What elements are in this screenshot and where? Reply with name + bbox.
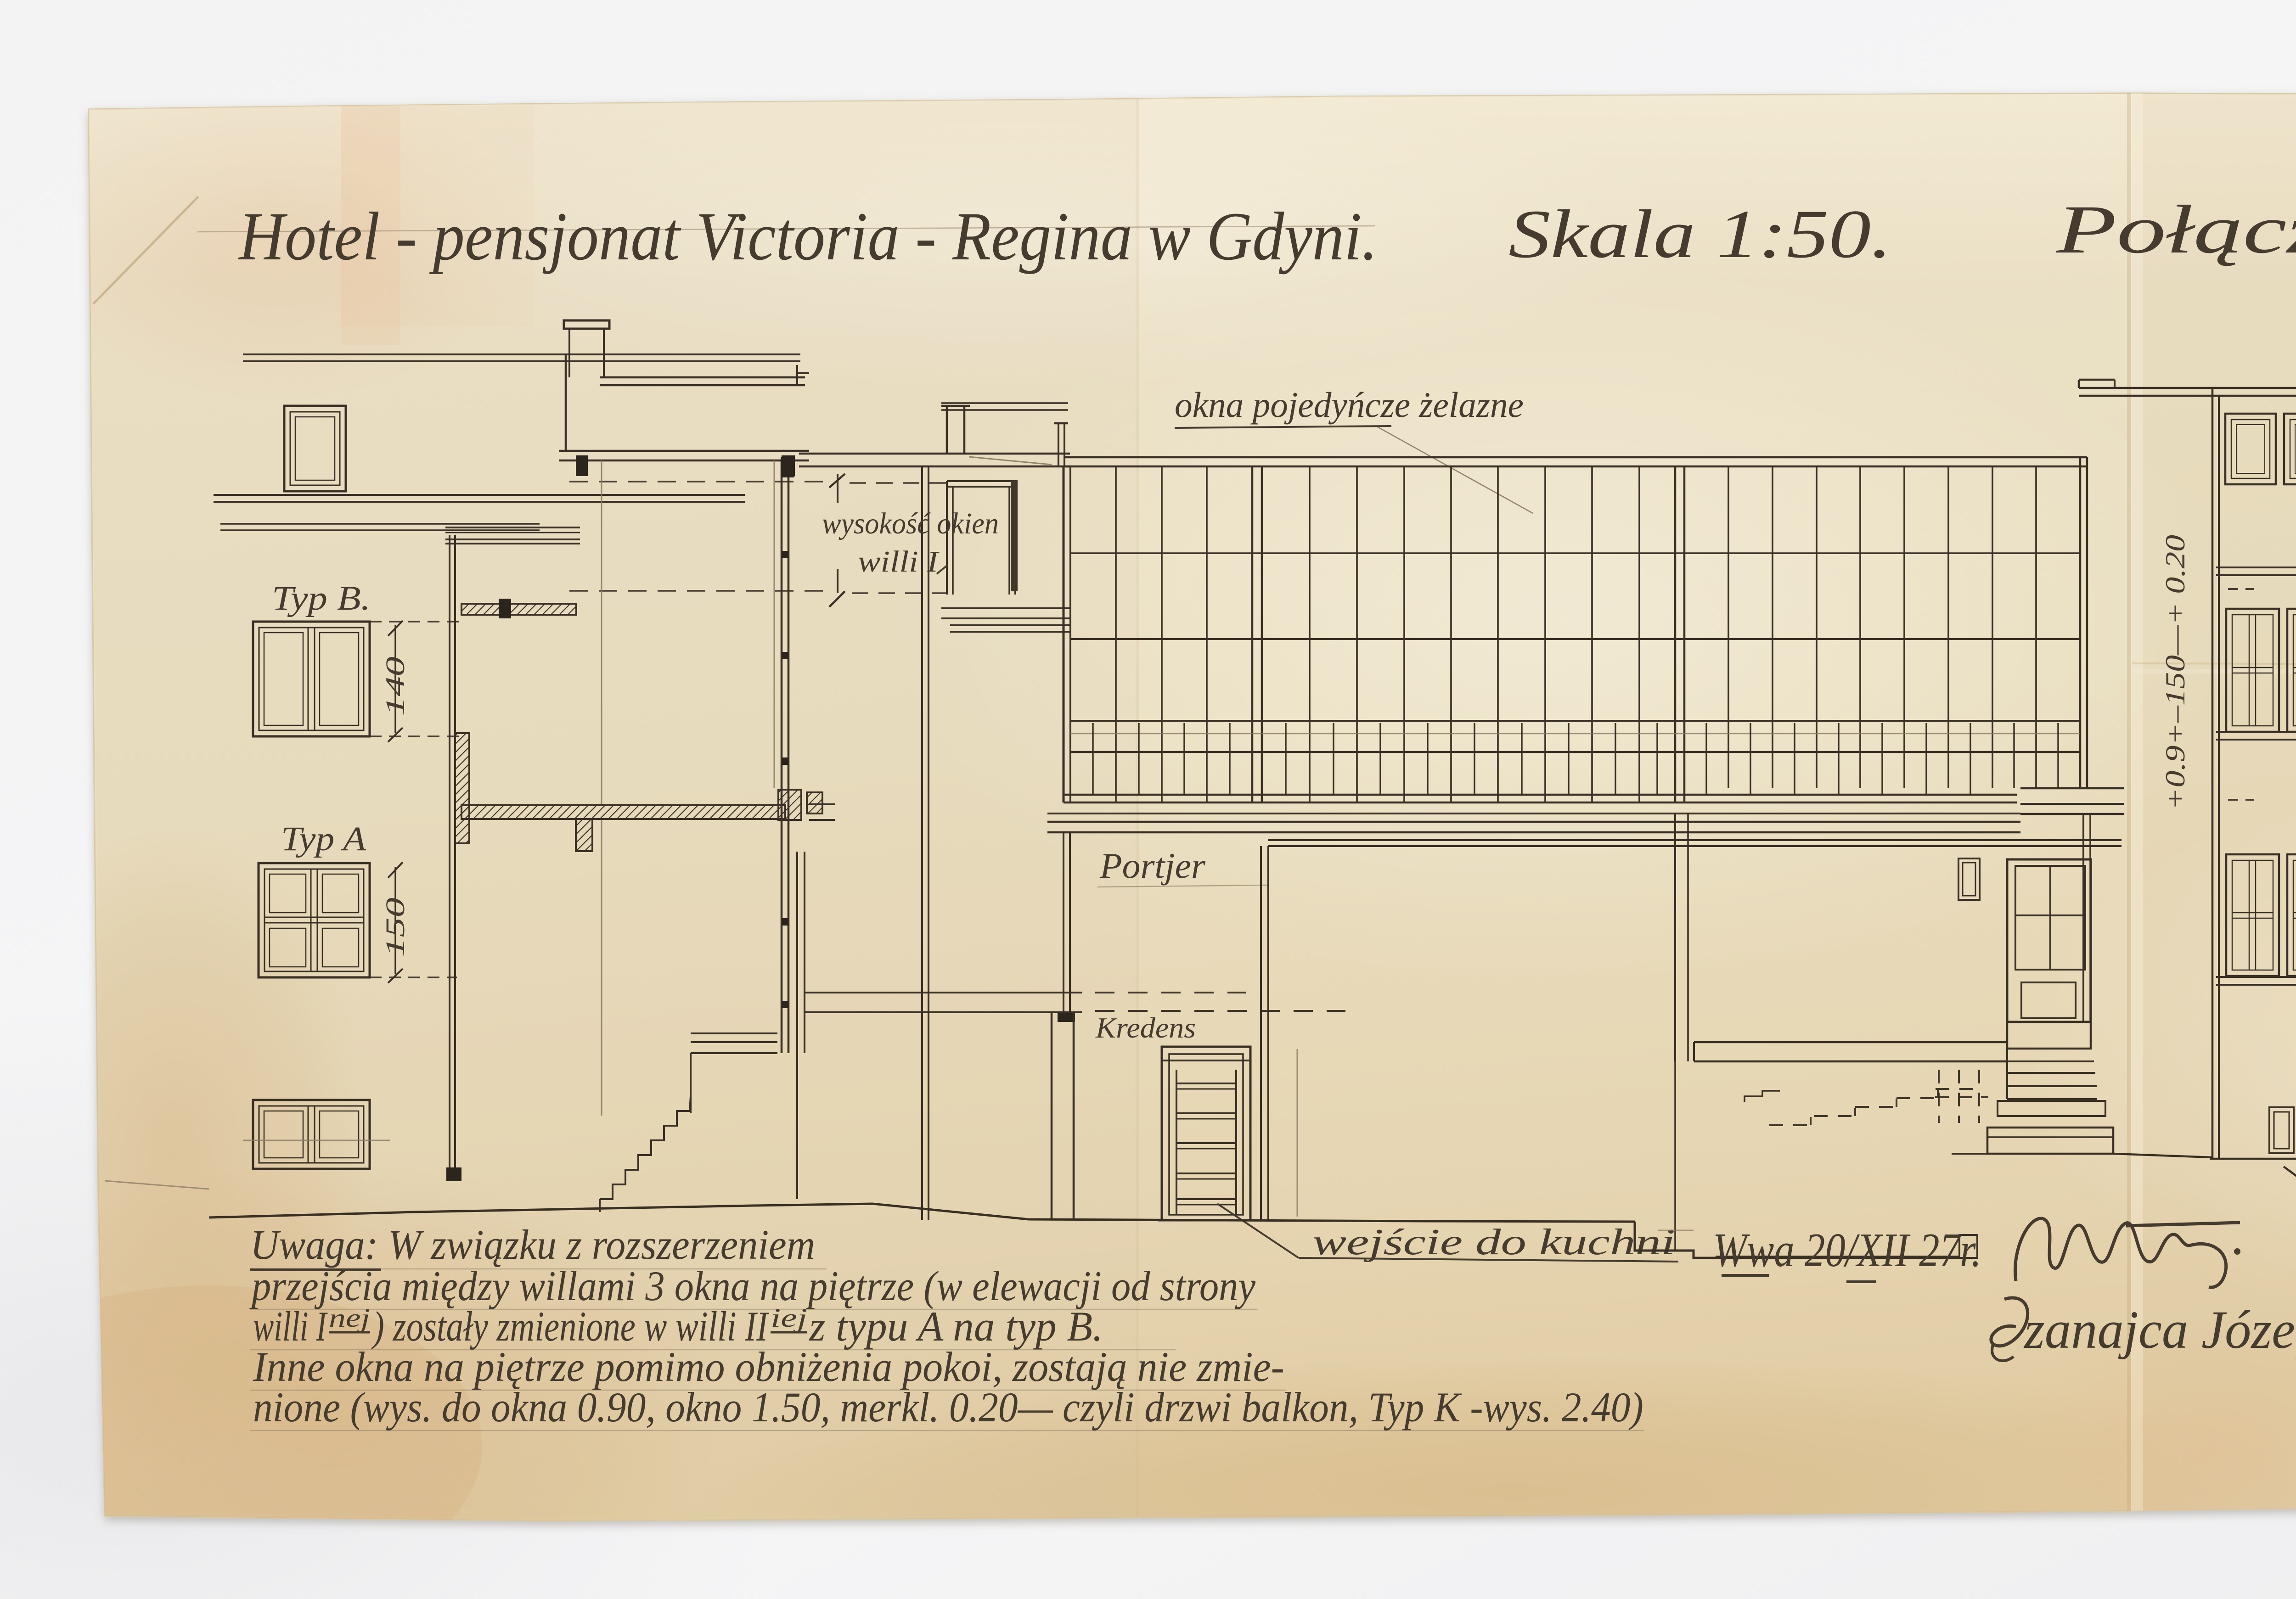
svg-text:przejścia między willami 3 okn: przejścia między willami 3 okna na piętr… <box>249 1262 1255 1309</box>
svg-text:Uwaga: W związku z rozszerzeni: Uwaga: W związku z rozszerzeniem <box>250 1221 815 1268</box>
svg-text:Inne okna na piętrze pomimo ob: Inne okna na piętrze pomimo obniżenia po… <box>253 1343 1284 1390</box>
svg-text:Połączenie 2: Połączenie 2 <box>2056 191 2296 268</box>
svg-text:wejście do kuchni: wejście do kuchni <box>1312 1222 1675 1262</box>
svg-text:Portjer: Portjer <box>1099 846 1206 886</box>
svg-text:) zostały zmienione w willi II: ) zostały zmienione w willi II <box>371 1303 770 1350</box>
svg-text:150: 150 <box>380 898 410 957</box>
svg-text:Typ B.: Typ B. <box>272 579 371 617</box>
svg-text:Typ A: Typ A <box>281 820 366 858</box>
svg-text:Wwa 20/XII 27r.: Wwa 20/XII 27r. <box>1713 1223 1981 1277</box>
svg-text:willi I: willi I <box>858 545 940 578</box>
svg-text:Skala 1:50.: Skala 1:50. <box>1508 196 1892 272</box>
svg-text:nione (wys. do okna 0.90, okno: nione (wys. do okna 0.90, okno 1.50, mer… <box>253 1384 1643 1431</box>
svg-text:140: 140 <box>380 656 410 716</box>
svg-text:nej: nej <box>329 1303 370 1333</box>
svg-text:iej: iej <box>771 1303 807 1333</box>
svg-text:willi I: willi I <box>253 1303 328 1350</box>
svg-text:zanajca Józef: zanajca Józef <box>2023 1300 2296 1360</box>
svg-text:Kredens: Kredens <box>1095 1011 1196 1044</box>
svg-text:Hotel - pensjonat Victoria - R: Hotel - pensjonat Victoria - Regina w Gd… <box>238 198 1378 275</box>
svg-text:okna pojedyńcze żelazne: okna pojedyńcze żelazne <box>1175 385 1524 425</box>
svg-text:+0.9+–150—+ 0.20: +0.9+–150—+ 0.20 <box>2160 535 2190 810</box>
svg-text:wysokość okien: wysokość okien <box>822 507 999 540</box>
svg-text:z typu A na typ B.: z typu A na typ B. <box>808 1303 1103 1350</box>
